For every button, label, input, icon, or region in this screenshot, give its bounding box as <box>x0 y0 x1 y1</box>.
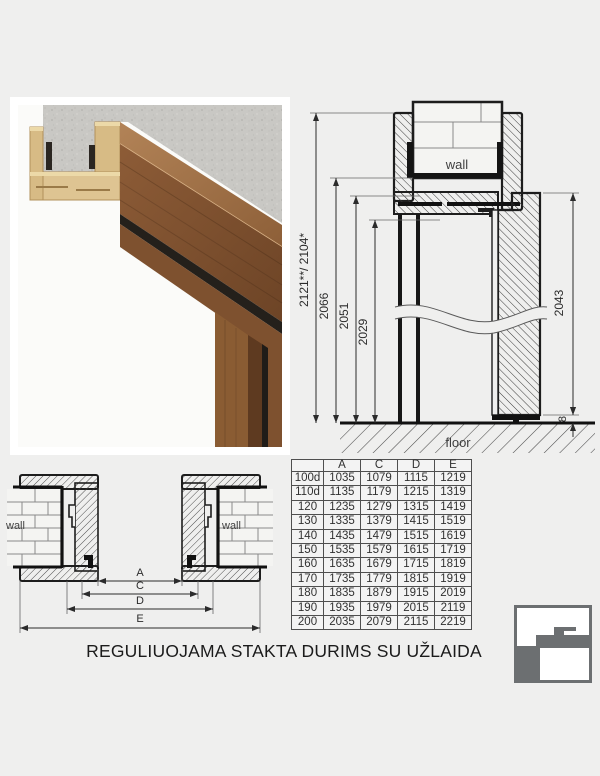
table-cell: 1535 <box>324 544 361 558</box>
table-cell: 1415 <box>398 515 435 529</box>
table-cell: 1515 <box>398 529 435 543</box>
vertical-section-drawing: wall <box>295 95 600 460</box>
table-cell: 150 <box>292 544 324 558</box>
column-header: C <box>361 460 398 472</box>
table-cell: 120 <box>292 500 324 514</box>
table-cell: 1879 <box>361 587 398 601</box>
table-cell: 1719 <box>435 544 472 558</box>
dim-a-label: A <box>136 567 144 579</box>
wall-label-right: wall <box>221 520 241 532</box>
table-cell: 1279 <box>361 500 398 514</box>
table-cell: 160 <box>292 558 324 572</box>
table-header-row: ACDE <box>292 460 472 472</box>
table-cell: 2035 <box>324 616 361 630</box>
table-cell: 1979 <box>361 601 398 615</box>
table-row: 1901935197920152119 <box>292 601 472 615</box>
table-cell: 1235 <box>324 500 361 514</box>
wall-section: wall <box>413 102 502 178</box>
table-cell: 2119 <box>435 601 472 615</box>
floor-label: floor <box>445 435 471 450</box>
dim-2029: 2029 <box>356 318 370 345</box>
dim-d-label: D <box>136 595 144 607</box>
anchor-slot <box>89 145 95 169</box>
page-title: REGULIUOJAMA STAKTA DURIMS SU UŽLAIDA <box>6 641 562 662</box>
table-cell: 1579 <box>361 544 398 558</box>
table-cell: 1115 <box>398 472 435 486</box>
table-cell: 1715 <box>398 558 435 572</box>
table-cell: 110d <box>292 486 324 500</box>
table-cell: 1179 <box>361 486 398 500</box>
table-cell: 1315 <box>398 500 435 514</box>
seal-detail <box>187 555 196 560</box>
table-row: 1401435147915151619 <box>292 529 472 543</box>
table-cell: 1679 <box>361 558 398 572</box>
table-cell: 140 <box>292 529 324 543</box>
table-cell: 1635 <box>324 558 361 572</box>
table-row: 2002035207921152219 <box>292 616 472 630</box>
table-cell: 1435 <box>324 529 361 543</box>
table-row: 110d1135117912151319 <box>292 486 472 500</box>
table-row: 100d1035107911151219 <box>292 472 472 486</box>
column-header: D <box>398 460 435 472</box>
head-seal <box>447 202 520 206</box>
seal-detail <box>84 555 93 560</box>
left-jamb-plan: wall <box>5 475 98 581</box>
table-cell: 130 <box>292 515 324 529</box>
table-cell: 1479 <box>361 529 398 543</box>
table-cell: 2115 <box>398 616 435 630</box>
table-row: 1801835187919152019 <box>292 587 472 601</box>
table-cell: 1735 <box>324 572 361 586</box>
frame-corner-photo <box>10 97 290 455</box>
rubber-seal <box>262 344 268 447</box>
table-cell: 1919 <box>435 572 472 586</box>
door-frame-profile-logo <box>514 605 592 683</box>
table-cell: 1335 <box>324 515 361 529</box>
table-cell: 1215 <box>398 486 435 500</box>
table-cell: 1419 <box>435 500 472 514</box>
table-cell: 200 <box>292 616 324 630</box>
table-cell: 190 <box>292 601 324 615</box>
dim-2066: 2066 <box>317 292 331 319</box>
table-cell: 2219 <box>435 616 472 630</box>
door-bottom-edge <box>492 415 540 420</box>
table-cell: 2079 <box>361 616 398 630</box>
column-header: E <box>435 460 472 472</box>
table-cell: 1519 <box>435 515 472 529</box>
table-row: 1601635167917151819 <box>292 558 472 572</box>
column-header <box>292 460 324 472</box>
dimension-table: ACDE 100d1035107911151219110d11351179121… <box>291 459 472 630</box>
table-cell: 1835 <box>324 587 361 601</box>
table-row: 1201235127913151419 <box>292 500 472 514</box>
head-seal <box>398 202 442 206</box>
dim-e-label: E <box>136 613 143 625</box>
table-cell: 1779 <box>361 572 398 586</box>
table-cell: 1135 <box>324 486 361 500</box>
table-cell: 170 <box>292 572 324 586</box>
table-row: 1301335137914151519 <box>292 515 472 529</box>
table-cell: 1219 <box>435 472 472 486</box>
table-cell: 1379 <box>361 515 398 529</box>
table-cell: 1815 <box>398 572 435 586</box>
table-cell: 1935 <box>324 601 361 615</box>
spec-sheet: wall <box>0 0 600 776</box>
dim-2043: 2043 <box>552 289 566 316</box>
table-cell: 2015 <box>398 601 435 615</box>
anchor-slot <box>46 142 52 170</box>
dim-2051: 2051 <box>337 302 351 329</box>
table-cell: 1079 <box>361 472 398 486</box>
floor: floor <box>340 423 595 453</box>
column-header: A <box>324 460 361 472</box>
table-cell: 1819 <box>435 558 472 572</box>
table-row: 1501535157916151719 <box>292 544 472 558</box>
table-cell: 100d <box>292 472 324 486</box>
horizontal-section-drawing: wall wall <box>0 455 290 650</box>
dim-bottom-gap: 8 <box>557 416 569 422</box>
wall-label-left: wall <box>5 520 25 532</box>
table-cell: 180 <box>292 587 324 601</box>
table-cell: 1035 <box>324 472 361 486</box>
table-cell: 1319 <box>435 486 472 500</box>
table-cell: 1615 <box>398 544 435 558</box>
frame-edge-line <box>416 214 420 423</box>
table-cell: 2019 <box>435 587 472 601</box>
right-jamb-plan: wall <box>182 475 273 581</box>
wall-label: wall <box>445 157 469 172</box>
dim-overall-height: 2121**/ 2104* <box>297 233 311 307</box>
dim-c-label: C <box>136 580 144 592</box>
table-row: 1701735177918151919 <box>292 572 472 586</box>
table-cell: 1619 <box>435 529 472 543</box>
table-cell: 1915 <box>398 587 435 601</box>
